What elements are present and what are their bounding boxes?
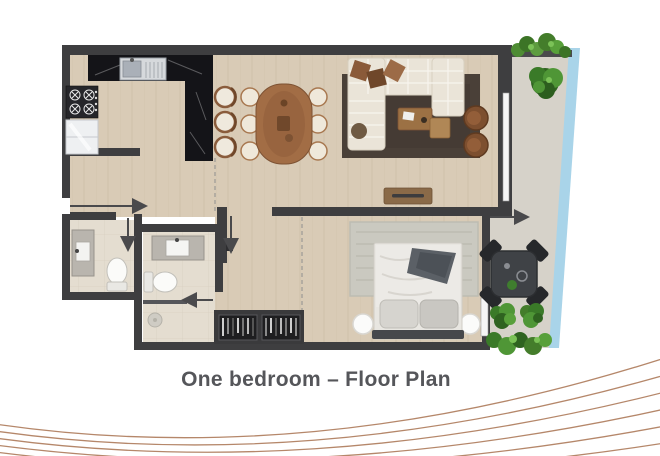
hallway-floor: [70, 156, 272, 217]
guest-toilet: [107, 258, 127, 291]
dining-area: [241, 84, 327, 164]
kitchen-sink: [120, 58, 166, 80]
cooktop: [66, 86, 98, 118]
fridge: [66, 120, 98, 154]
pouf: [351, 123, 367, 139]
wall-left-lower: [62, 214, 70, 300]
guest-vanity: [72, 230, 94, 276]
ensuite-vanity: [152, 236, 204, 260]
wall-bottom: [134, 342, 490, 350]
bedroom-balcony-sliding-door: [481, 298, 488, 336]
plants-balcony-bottom: [486, 332, 552, 355]
shower-partition: [143, 300, 187, 304]
wall-ensuite-right-upper: [215, 232, 223, 292]
plants-balcony-top: [511, 33, 571, 58]
bar-stools: [215, 87, 236, 157]
ensuite-toilet: [144, 272, 177, 292]
kitchen-island: [185, 81, 213, 161]
nightstand-left: [353, 314, 373, 334]
pillow-left: [380, 300, 418, 328]
wardrobe: [214, 310, 304, 344]
living-balcony-sliding-door: [503, 93, 509, 201]
wall-between-bathrooms: [134, 214, 142, 300]
coffee-table: [398, 108, 432, 130]
wall-guestbath-bottom: [62, 292, 142, 300]
wall-living-bedroom-divider: [272, 207, 512, 216]
headboard: [372, 330, 464, 339]
wall-guestbath-top: [70, 212, 116, 220]
dining-table: [256, 84, 312, 164]
bed: [372, 243, 464, 339]
wall-top: [62, 45, 512, 55]
floor-plan-caption: One bedroom – Floor Plan: [0, 368, 632, 392]
side-table: [430, 118, 450, 138]
wall-ensuite-top: [142, 224, 217, 232]
tv-console: [384, 188, 432, 204]
pillow-right: [420, 300, 458, 328]
wall-left-mid: [62, 156, 70, 198]
wall-step: [134, 292, 142, 350]
